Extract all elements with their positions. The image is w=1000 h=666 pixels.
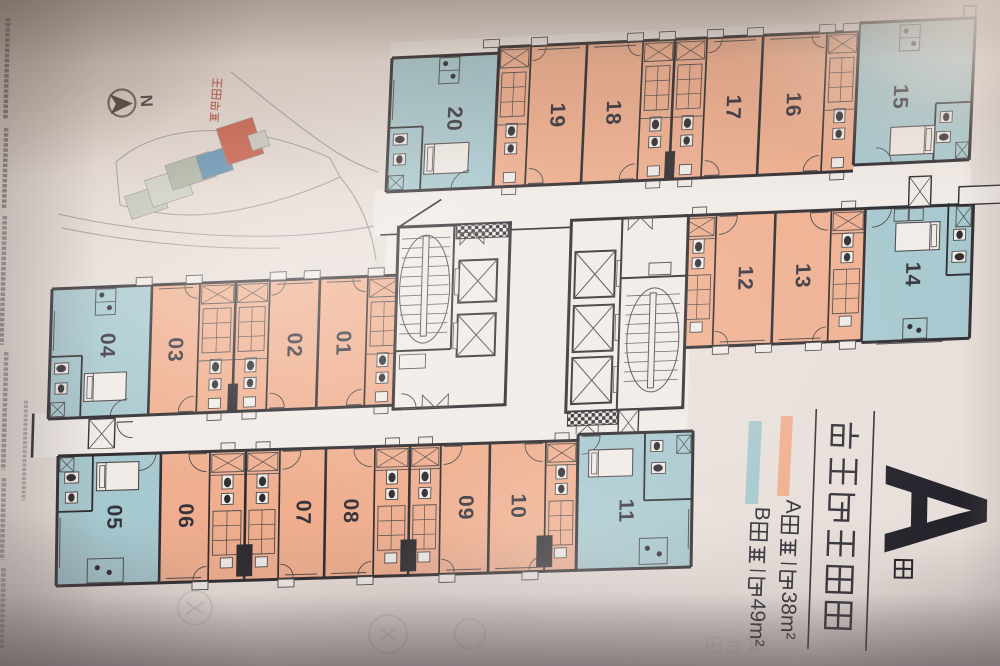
- svg-text:06: 06: [174, 503, 197, 529]
- svg-text:49m²: 49m²: [745, 598, 770, 647]
- svg-text:01: 01: [331, 330, 355, 356]
- svg-text:12: 12: [733, 265, 757, 291]
- svg-text:14: 14: [901, 261, 925, 287]
- svg-text:13: 13: [791, 263, 815, 289]
- svg-text:20: 20: [442, 106, 466, 132]
- svg-text:17: 17: [721, 94, 745, 120]
- svg-text:38m²: 38m²: [776, 591, 801, 640]
- svg-text:07: 07: [291, 500, 314, 526]
- svg-text:09: 09: [454, 495, 477, 521]
- svg-text:15: 15: [888, 84, 912, 110]
- svg-text:B: B: [750, 506, 773, 521]
- svg-text:08: 08: [339, 498, 362, 524]
- svg-text:16: 16: [781, 92, 805, 118]
- svg-text:04: 04: [95, 333, 119, 359]
- svg-text:02: 02: [282, 332, 306, 358]
- svg-text:A: A: [852, 461, 1000, 558]
- svg-text:N: N: [137, 94, 157, 107]
- svg-text:05: 05: [102, 504, 125, 530]
- svg-text:19: 19: [545, 102, 569, 128]
- svg-text:10: 10: [506, 493, 529, 519]
- svg-text:18: 18: [601, 100, 625, 126]
- svg-text:11: 11: [614, 498, 637, 523]
- svg-text:A: A: [781, 499, 804, 514]
- svg-text:03: 03: [163, 337, 187, 363]
